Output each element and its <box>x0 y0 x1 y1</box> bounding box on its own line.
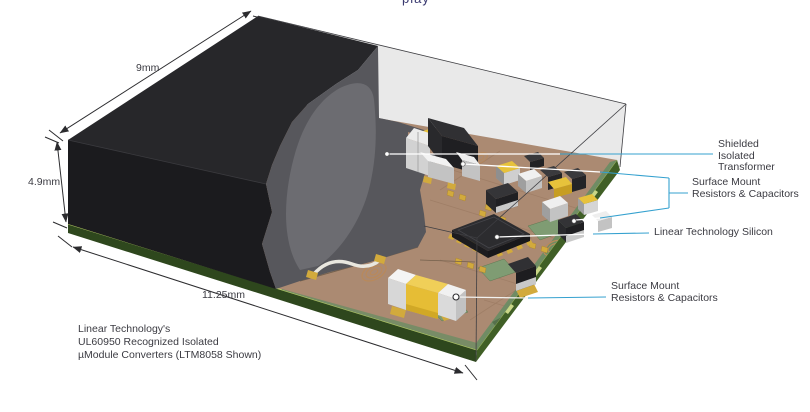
callout-surface-mount-bottom: Surface Mount Resistors & Capacitors <box>611 281 718 304</box>
dimension-label-11-25mm: 11.25mm <box>202 289 245 301</box>
callout-surface-mount-top: Surface Mount Resistors & Capacitors <box>692 177 799 200</box>
capacitor-white-3 <box>592 211 612 232</box>
dimension-label-9mm: 9mm <box>136 62 159 74</box>
callout-shielded-isolated-transformer: Shielded Isolated Transformer <box>718 139 810 174</box>
capacitor-yellow-top-2 <box>578 194 598 215</box>
figure-caption: Linear Technology's UL60950 Recognized I… <box>78 323 261 362</box>
cropped-title-fragment: play <box>402 0 482 7</box>
callout-linear-technology-silicon: Linear Technology Silicon <box>654 227 773 239</box>
dimension-label-4-9mm: 4.9mm <box>28 176 60 188</box>
module-cutaway-figure: play 9mm 4.9mm 11.25mm Shielded Isolated… <box>0 0 810 412</box>
